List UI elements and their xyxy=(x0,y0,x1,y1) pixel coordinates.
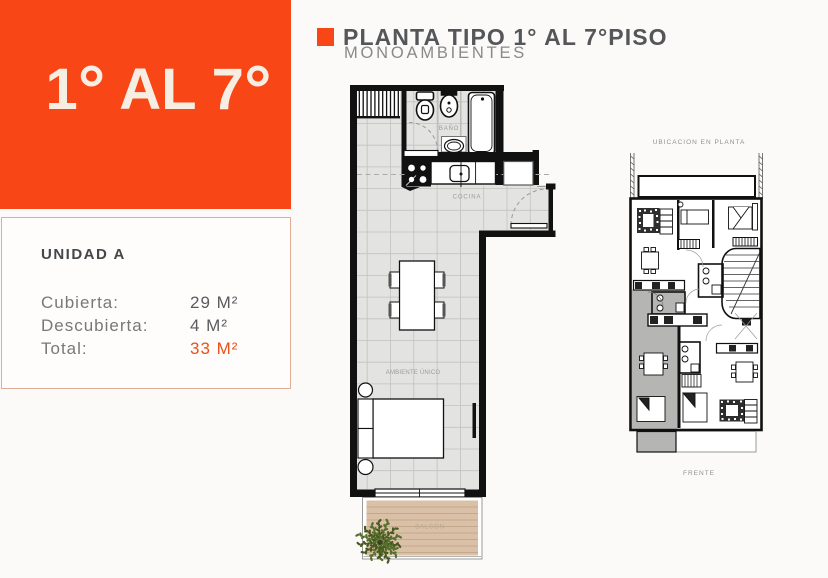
svg-text:BAÑO: BAÑO xyxy=(439,125,459,132)
svg-text:AMBIENTE ÚNICO: AMBIENTE ÚNICO xyxy=(386,369,441,376)
svg-text:UBICACION EN PLANTA: UBICACION EN PLANTA xyxy=(653,139,746,146)
svg-text:BALCÓN: BALCÓN xyxy=(415,524,444,531)
svg-text:FRENTE: FRENTE xyxy=(683,470,715,475)
svg-text:COCINA: COCINA xyxy=(453,195,482,201)
